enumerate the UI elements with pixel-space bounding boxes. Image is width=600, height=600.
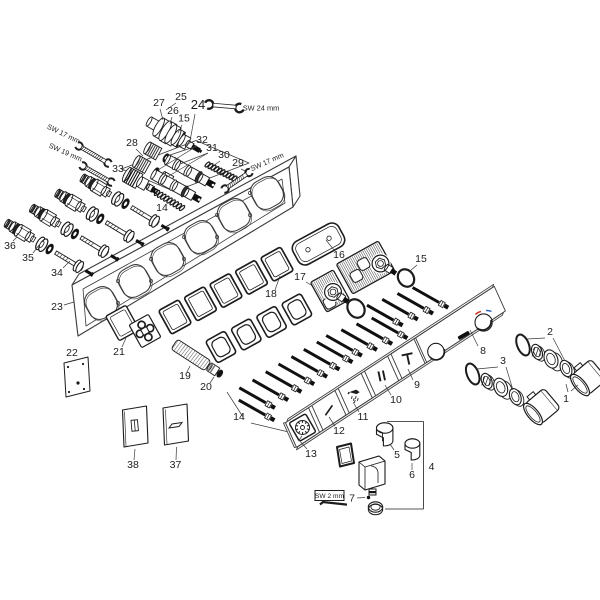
svg-text:2: 2 <box>547 326 553 338</box>
svg-text:34: 34 <box>51 267 63 279</box>
svg-text:33: 33 <box>112 163 124 175</box>
svg-text:14: 14 <box>233 411 245 423</box>
svg-text:8: 8 <box>480 345 486 357</box>
svg-text:22: 22 <box>66 347 78 359</box>
svg-text:10: 10 <box>390 394 402 406</box>
svg-text:7: 7 <box>349 493 355 505</box>
svg-text:31: 31 <box>206 142 218 154</box>
svg-text:15: 15 <box>178 113 190 125</box>
svg-text:13: 13 <box>305 448 317 460</box>
svg-text:5: 5 <box>394 449 400 461</box>
svg-text:14: 14 <box>156 202 168 214</box>
svg-text:29: 29 <box>232 157 244 169</box>
svg-text:21: 21 <box>113 346 125 358</box>
svg-text:4: 4 <box>429 461 435 473</box>
svg-text:23: 23 <box>51 301 63 313</box>
svg-text:SW 24 mm: SW 24 mm <box>243 104 280 113</box>
svg-text:3: 3 <box>500 355 506 367</box>
svg-text:25: 25 <box>175 91 187 103</box>
svg-text:37: 37 <box>170 459 182 471</box>
svg-text:17: 17 <box>294 271 306 283</box>
svg-text:1: 1 <box>563 393 569 405</box>
svg-text:38: 38 <box>127 459 139 471</box>
svg-text:36: 36 <box>4 240 16 252</box>
svg-text:SW 2 mm: SW 2 mm <box>315 493 344 500</box>
svg-text:35: 35 <box>22 252 34 264</box>
svg-text:9: 9 <box>414 379 420 391</box>
svg-text:15: 15 <box>415 253 427 265</box>
svg-text:11: 11 <box>358 411 369 423</box>
svg-text:24: 24 <box>191 97 205 112</box>
svg-text:30: 30 <box>218 149 230 161</box>
svg-text:16: 16 <box>333 249 345 261</box>
svg-text:19: 19 <box>179 370 191 382</box>
svg-text:6: 6 <box>409 469 415 481</box>
svg-text:27: 27 <box>153 97 165 109</box>
svg-text:12: 12 <box>333 425 345 437</box>
svg-text:28: 28 <box>126 137 138 149</box>
